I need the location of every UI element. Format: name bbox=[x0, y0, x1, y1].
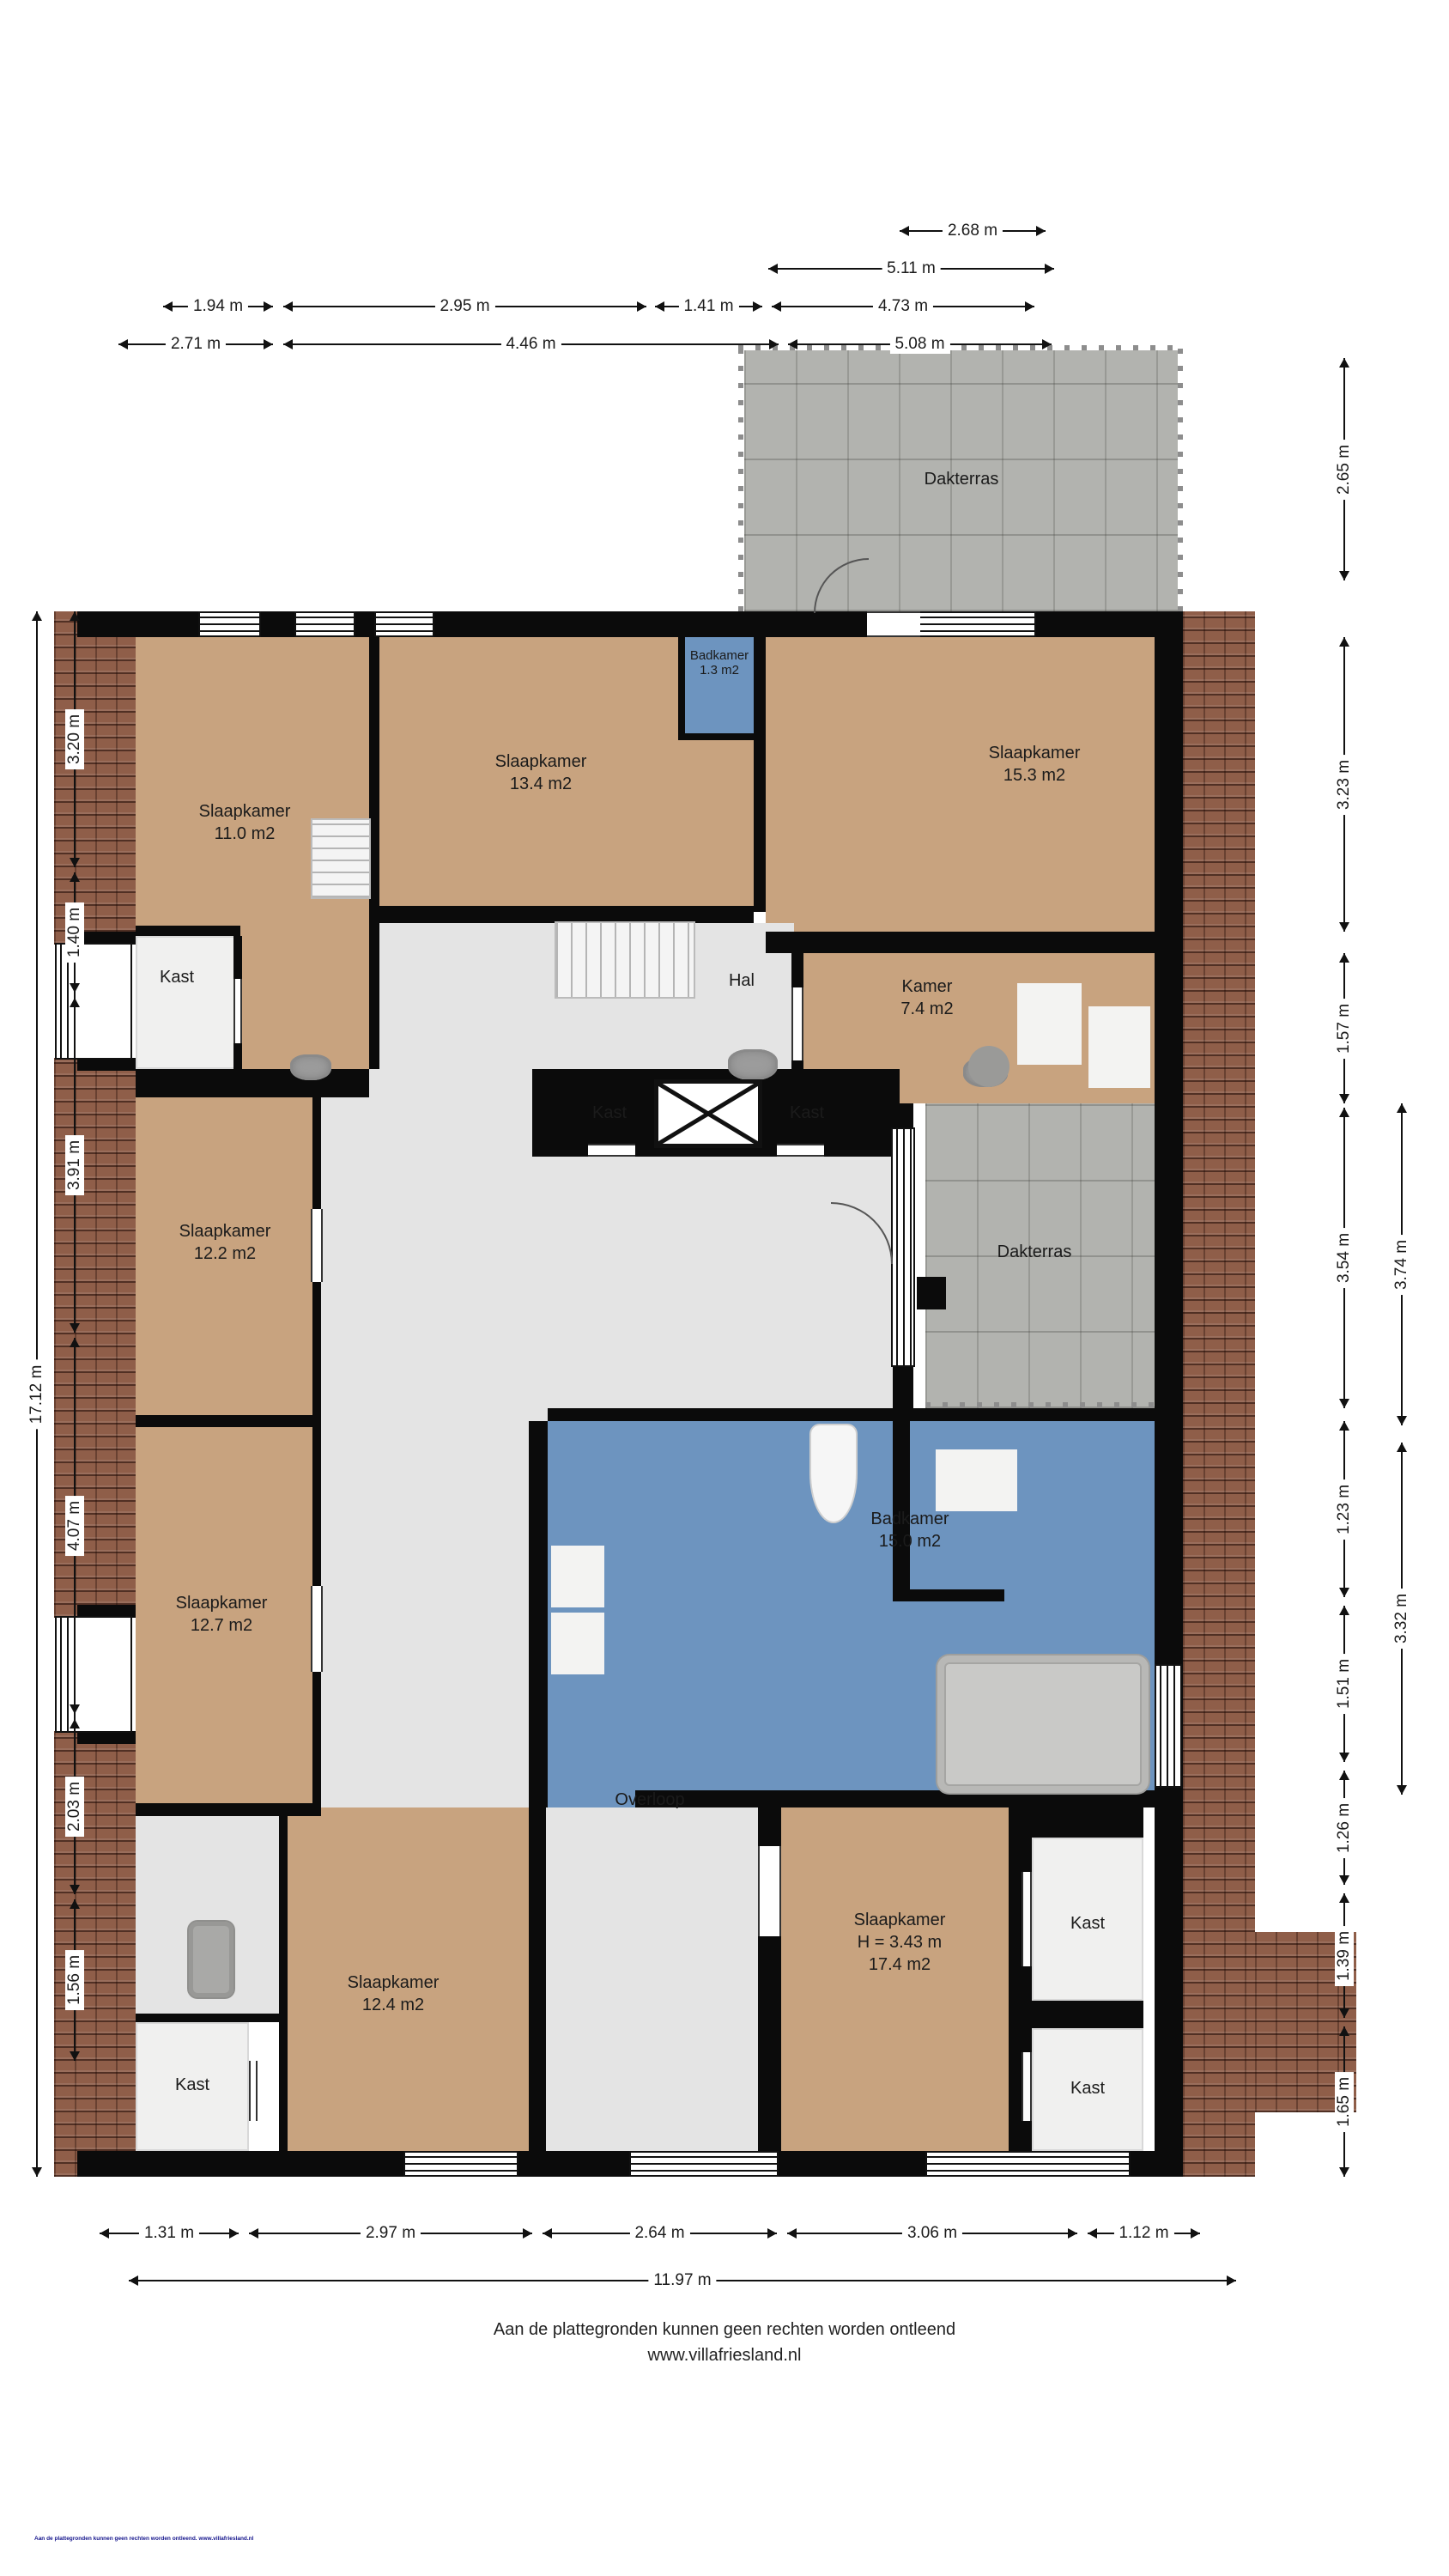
void-shaft bbox=[658, 1084, 758, 1144]
wall bbox=[136, 1415, 321, 1427]
room-label-dakterras-top: Dakterras bbox=[925, 468, 999, 490]
shower-tray bbox=[936, 1449, 1017, 1511]
roof-edge-right bbox=[1183, 611, 1255, 2177]
window bbox=[200, 613, 259, 635]
room-label-badkamer-13: Badkamer1.3 m2 bbox=[690, 648, 749, 678]
toilet bbox=[811, 1425, 856, 1522]
wall bbox=[548, 1408, 1155, 1421]
washbasin bbox=[551, 1546, 604, 1607]
wall bbox=[77, 932, 136, 945]
room-label-kamer: Kamer7.4 m2 bbox=[900, 975, 953, 1020]
room-label-overloop: Overloop bbox=[615, 1789, 684, 1811]
room-label-dakterras-mid: Dakterras bbox=[997, 1241, 1072, 1263]
footer-fineprint: Aan de plattegronden kunnen geen rechten… bbox=[34, 2536, 253, 2542]
terrace-door bbox=[867, 611, 920, 637]
wall bbox=[312, 1097, 321, 1807]
wall bbox=[678, 733, 754, 740]
footer-disclaimer: Aan de plattegronden kunnen geen rechten… bbox=[0, 2320, 1449, 2340]
closet-door bbox=[233, 979, 242, 1043]
room-overloop bbox=[546, 1807, 758, 2151]
floorplan-canvas: Dakterras Slaapkamer11.0 m2 Slaapkamer13… bbox=[0, 0, 1449, 2576]
sink bbox=[728, 1049, 778, 1080]
room-label-slaapkamer-122: Slaapkamer12.2 m2 bbox=[179, 1220, 271, 1265]
wall bbox=[893, 1589, 1004, 1601]
desk bbox=[1088, 1006, 1150, 1088]
closet-door bbox=[777, 1144, 824, 1157]
wall bbox=[369, 637, 379, 1069]
terrace-top-fence-right bbox=[1178, 345, 1183, 611]
stairs bbox=[556, 923, 694, 997]
closet-label: Kast bbox=[790, 1102, 824, 1124]
room-overloop bbox=[321, 1421, 529, 1807]
closet-label: Kast bbox=[592, 1102, 627, 1124]
wall bbox=[77, 1605, 136, 1618]
stairs bbox=[312, 820, 369, 897]
closet-door bbox=[588, 1144, 635, 1157]
closet-door bbox=[1022, 1872, 1032, 1966]
room-label-badkamer-150: Badkamer15.0 m2 bbox=[870, 1508, 949, 1552]
terrace-top-fence bbox=[738, 345, 1183, 350]
wall bbox=[635, 1790, 1155, 1807]
wall bbox=[77, 1731, 136, 1744]
room-label-slaapkamer-124: Slaapkamer12.4 m2 bbox=[348, 1971, 440, 2016]
closet-label: Kast bbox=[175, 2074, 209, 2096]
terrace-top-fence-left bbox=[738, 345, 743, 611]
door bbox=[311, 1586, 323, 1672]
sink bbox=[290, 1054, 331, 1080]
closet-door bbox=[249, 2061, 258, 2121]
window bbox=[927, 2153, 1129, 2175]
wall bbox=[136, 2014, 279, 2022]
room-slaapkamer-174 bbox=[781, 1807, 1022, 2151]
door bbox=[311, 1209, 323, 1282]
terrace-mid-fence bbox=[925, 1402, 1155, 1407]
roof-edge-left bbox=[54, 611, 136, 945]
room-label-slaapkamer-134: Slaapkamer13.4 m2 bbox=[495, 750, 587, 795]
wall bbox=[1032, 1807, 1143, 1838]
room-label-slaapkamer-127: Slaapkamer12.7 m2 bbox=[176, 1592, 268, 1637]
window bbox=[296, 613, 354, 635]
window bbox=[1156, 1666, 1180, 1786]
wall bbox=[136, 1803, 321, 1816]
closet-label: Kast bbox=[1070, 1912, 1105, 1935]
wall bbox=[529, 1807, 546, 2151]
bathtub bbox=[937, 1656, 1149, 1793]
room-label-slaapkamer-153: Slaapkamer15.3 m2 bbox=[989, 742, 1081, 787]
room-slaapkamer-153 bbox=[766, 637, 1155, 932]
closet-label: Kast bbox=[160, 966, 194, 988]
wall bbox=[678, 637, 685, 740]
window bbox=[376, 613, 433, 635]
wall bbox=[379, 906, 754, 923]
window bbox=[631, 2153, 777, 2175]
wall bbox=[766, 932, 1155, 953]
desk bbox=[1017, 983, 1082, 1065]
closet-label: Kast bbox=[1070, 2077, 1105, 2099]
door bbox=[758, 1846, 781, 1936]
window bbox=[405, 2153, 517, 2175]
closet-topleft bbox=[136, 936, 237, 1069]
wall bbox=[136, 1069, 369, 1097]
wall bbox=[1032, 2001, 1143, 2028]
wall bbox=[136, 926, 240, 936]
room-label-slaapkamer-11: Slaapkamer11.0 m2 bbox=[199, 800, 291, 845]
wall bbox=[77, 1058, 136, 1071]
room-label-slaapkamer-174: SlaapkamerH = 3.43 m17.4 m2 bbox=[854, 1909, 946, 1976]
wall bbox=[1155, 611, 1183, 2177]
closet-door bbox=[1022, 2052, 1032, 2121]
window bbox=[57, 1618, 130, 1731]
wall bbox=[279, 1816, 288, 2151]
wall bbox=[917, 1277, 946, 1309]
wall bbox=[754, 637, 766, 912]
washbasin bbox=[551, 1613, 604, 1674]
wall bbox=[529, 1421, 548, 1807]
chair bbox=[968, 1046, 1009, 1087]
terrace-glass-door bbox=[893, 1129, 913, 1365]
room-label-hal: Hal bbox=[729, 969, 755, 992]
footer-website: www.villafriesland.nl bbox=[0, 2346, 1449, 2366]
bathtub-small bbox=[189, 1922, 233, 1997]
door bbox=[791, 987, 803, 1060]
